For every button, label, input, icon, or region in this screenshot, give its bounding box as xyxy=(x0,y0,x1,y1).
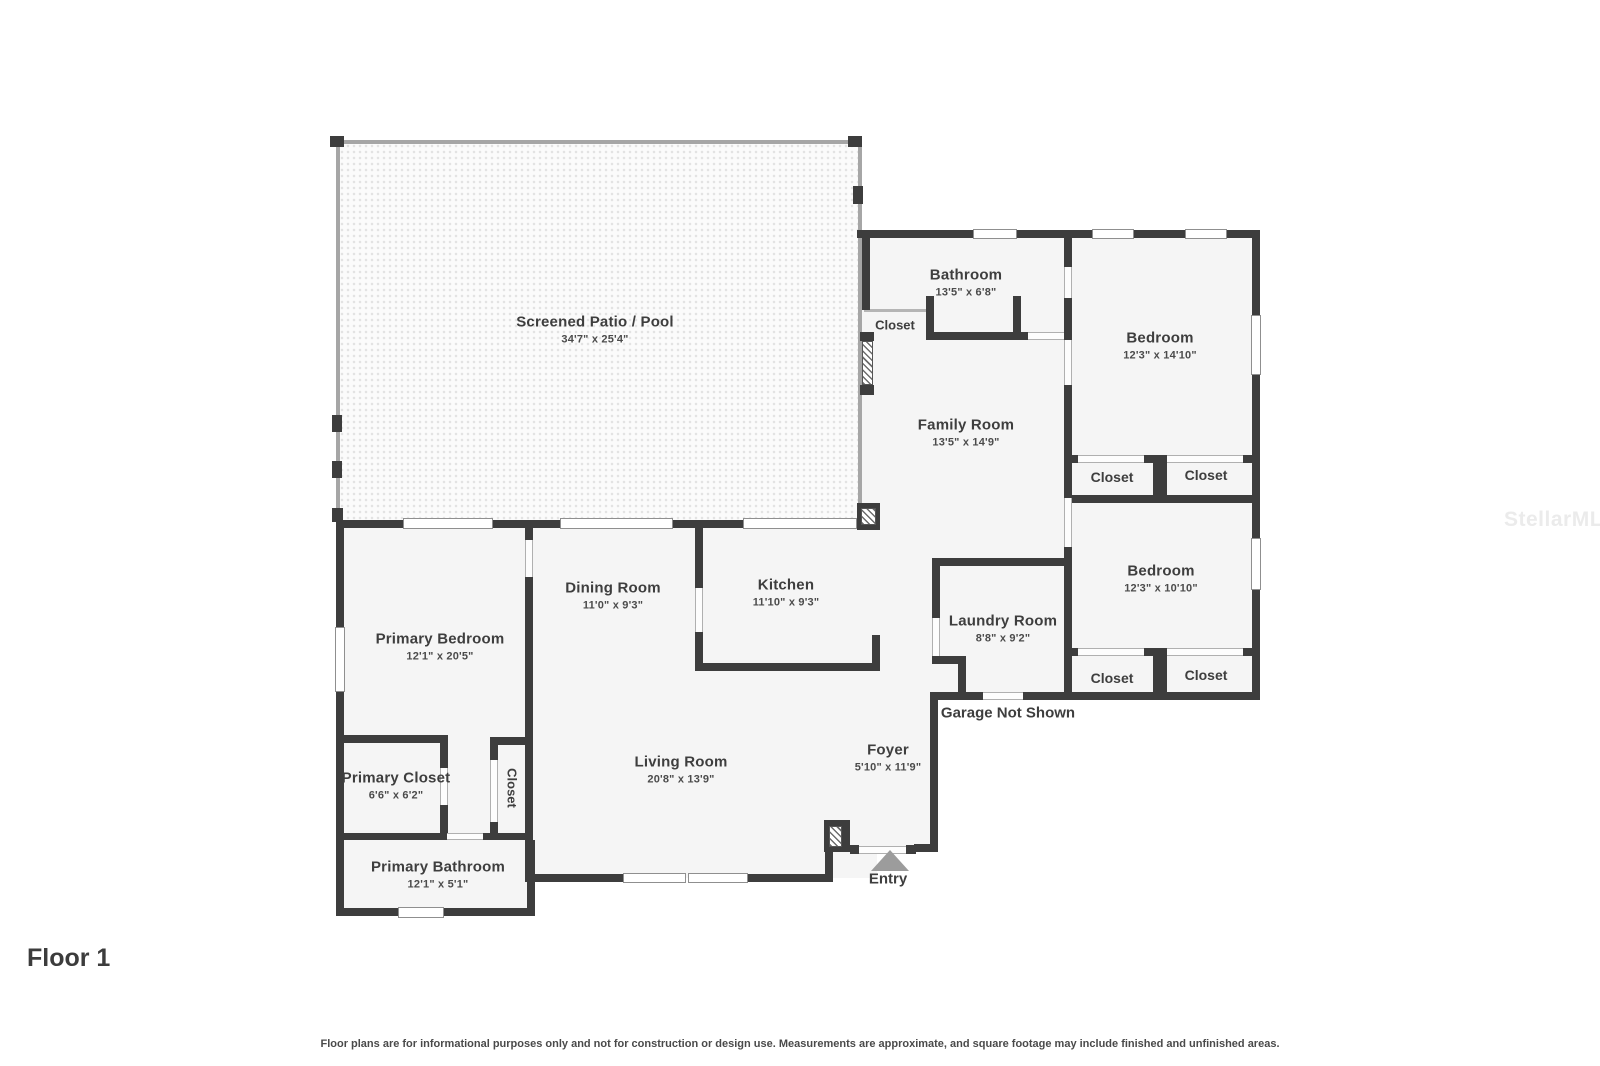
room-label-living: Living Room20'8" x 13'9" xyxy=(634,753,727,787)
wall xyxy=(1153,455,1167,495)
wall xyxy=(1144,455,1153,463)
wall xyxy=(926,296,934,340)
wall xyxy=(336,520,344,627)
patio-post xyxy=(332,415,342,432)
wall xyxy=(1064,455,1078,463)
room-label-primary-bedroom: Primary Bedroom12'1" x 20'5" xyxy=(376,630,505,664)
wall xyxy=(525,528,533,540)
floor-plan-canvas: Screened Patio / Pool34'7" x 25'4" Bathr… xyxy=(0,0,1600,1066)
door-opening xyxy=(490,760,498,822)
room-label-bedroom1: Bedroom12'3" x 14'10" xyxy=(1123,329,1197,363)
room-label-primary-closet: Primary Closet6'6" x 6'2" xyxy=(342,769,451,803)
closet-door-opening xyxy=(1167,455,1243,463)
window xyxy=(623,873,686,883)
wall xyxy=(1064,495,1260,503)
wall xyxy=(748,874,833,882)
wall xyxy=(1064,385,1072,498)
wall xyxy=(932,558,1064,566)
wall xyxy=(525,874,623,882)
closet-door-opening xyxy=(1167,648,1243,656)
wall xyxy=(490,745,498,760)
wall-opening xyxy=(1064,267,1072,298)
disclaimer-text: Floor plans are for informational purpos… xyxy=(0,1038,1600,1050)
wall xyxy=(440,805,448,833)
window xyxy=(973,229,1017,239)
entry-label: Entry xyxy=(869,871,907,888)
window xyxy=(1092,229,1134,239)
wall xyxy=(1064,230,1072,267)
wall xyxy=(673,520,743,528)
window xyxy=(560,518,673,529)
door-opening xyxy=(1064,340,1072,385)
closet-label-bed1-right: Closet xyxy=(1185,467,1228,483)
room-label-bedroom2: Bedroom12'3" x 10'10" xyxy=(1124,562,1198,596)
closet-label-bed1-left: Closet xyxy=(1091,469,1134,485)
door-opening xyxy=(525,540,533,577)
wall xyxy=(1243,648,1257,656)
room-label-bathroom: Bathroom13'5" x 6'8" xyxy=(930,266,1002,300)
wall xyxy=(695,528,703,588)
entry-direction-icon xyxy=(871,850,909,871)
wall xyxy=(336,692,344,916)
wall xyxy=(860,385,874,395)
wall xyxy=(958,656,966,700)
wall xyxy=(440,735,448,768)
garage-door-opening xyxy=(983,692,1023,700)
door-opening xyxy=(932,618,940,656)
floor-title: Floor 1 xyxy=(27,944,110,973)
room-label-family-room: Family Room13'5" x 14'9" xyxy=(918,416,1014,450)
room-label-kitchen: Kitchen11'10" x 9'3" xyxy=(753,576,820,610)
patio-post xyxy=(853,186,863,204)
garage-note: Garage Not Shown xyxy=(941,705,1075,722)
wall xyxy=(336,520,403,528)
room-label-primary-bathroom: Primary Bathroom12'1" x 5'1" xyxy=(371,858,505,892)
entry-door-jamb xyxy=(850,845,859,854)
closet-label-bed2-left: Closet xyxy=(1091,670,1134,686)
wall xyxy=(825,852,833,882)
wall xyxy=(493,520,560,528)
window xyxy=(688,873,748,883)
wall xyxy=(1064,298,1072,340)
wall xyxy=(872,635,880,671)
window xyxy=(743,518,857,529)
floor-fill-primary-suite xyxy=(340,524,531,912)
wall xyxy=(930,700,938,852)
door-opening xyxy=(1028,332,1064,340)
wall xyxy=(860,332,874,341)
wall xyxy=(1243,455,1257,463)
closet-door-opening xyxy=(1078,455,1144,463)
wall xyxy=(1252,230,1260,700)
entry-sidelight-hatch xyxy=(829,826,842,847)
wall xyxy=(695,663,880,671)
window xyxy=(335,627,345,692)
patio-post xyxy=(332,461,342,478)
wall xyxy=(336,833,447,840)
patio-post xyxy=(848,136,862,147)
window xyxy=(398,907,444,918)
wall xyxy=(336,735,448,743)
pocket-door-hatch xyxy=(862,341,873,385)
room-label-foyer: Foyer5'10" x 11'9" xyxy=(855,741,922,775)
wall xyxy=(1013,296,1021,336)
watermark-stellar-mls: StellarMLS xyxy=(1504,508,1600,532)
floor-fill-hall xyxy=(836,528,940,700)
wall xyxy=(862,230,870,310)
wall xyxy=(930,692,1260,700)
wall xyxy=(1153,648,1167,692)
window xyxy=(1251,315,1261,375)
door-opening xyxy=(695,588,703,632)
window xyxy=(1185,229,1227,239)
wall xyxy=(1144,648,1153,656)
room-label-dining: Dining Room11'0" x 9'3" xyxy=(565,579,661,613)
closet-label-bed2-right: Closet xyxy=(1185,667,1228,683)
corner-post-hatch xyxy=(861,508,876,525)
window xyxy=(1251,538,1261,590)
screen-wall xyxy=(336,140,862,144)
room-label-laundry: Laundry Room8'8" x 9'2" xyxy=(949,612,1057,646)
door-opening xyxy=(1064,498,1072,547)
closet-door-opening xyxy=(1078,648,1144,656)
window xyxy=(403,518,493,529)
wall xyxy=(932,558,940,618)
wall xyxy=(490,822,498,834)
room-label-patio: Screened Patio / Pool34'7" x 25'4" xyxy=(516,313,674,347)
closet-shelf-line xyxy=(864,309,926,312)
wall xyxy=(525,577,533,874)
wall xyxy=(1064,547,1072,692)
wall xyxy=(1064,648,1078,656)
patio-post xyxy=(330,136,344,147)
door-opening xyxy=(447,833,483,840)
closet-label-bath: Closet xyxy=(875,318,915,333)
closet-label-hall-vertical: Closet xyxy=(505,768,520,808)
